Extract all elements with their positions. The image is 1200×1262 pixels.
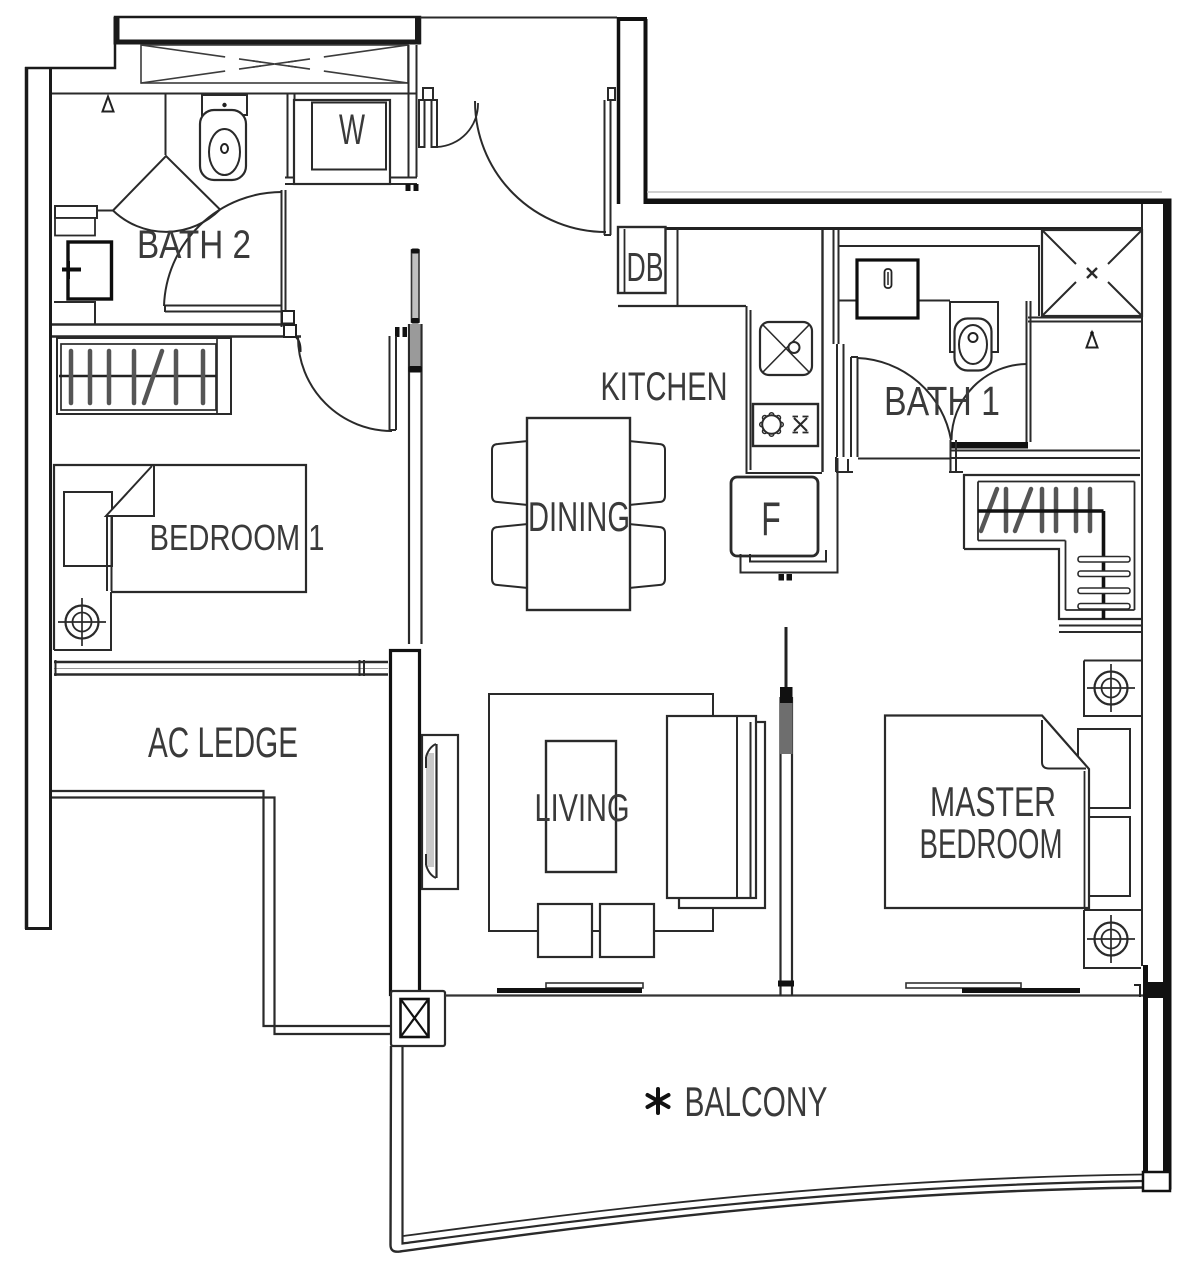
svg-text:BEDROOM 1: BEDROOM 1: [150, 517, 325, 558]
svg-text:AC LEDGE: AC LEDGE: [148, 719, 298, 767]
svg-text:BATH 1: BATH 1: [884, 378, 1000, 424]
svg-text:KITCHEN: KITCHEN: [601, 365, 728, 409]
svg-text:F: F: [761, 492, 781, 545]
svg-text:BALCONY: BALCONY: [685, 1078, 828, 1125]
svg-text:DB: DB: [627, 244, 664, 290]
svg-text:MASTER: MASTER: [930, 778, 1056, 825]
svg-text:DINING: DINING: [528, 493, 630, 540]
svg-text:BATH 2: BATH 2: [137, 223, 251, 267]
svg-text:BEDROOM: BEDROOM: [920, 820, 1063, 867]
svg-text:LIVING: LIVING: [535, 787, 630, 830]
svg-text:W: W: [339, 106, 365, 154]
